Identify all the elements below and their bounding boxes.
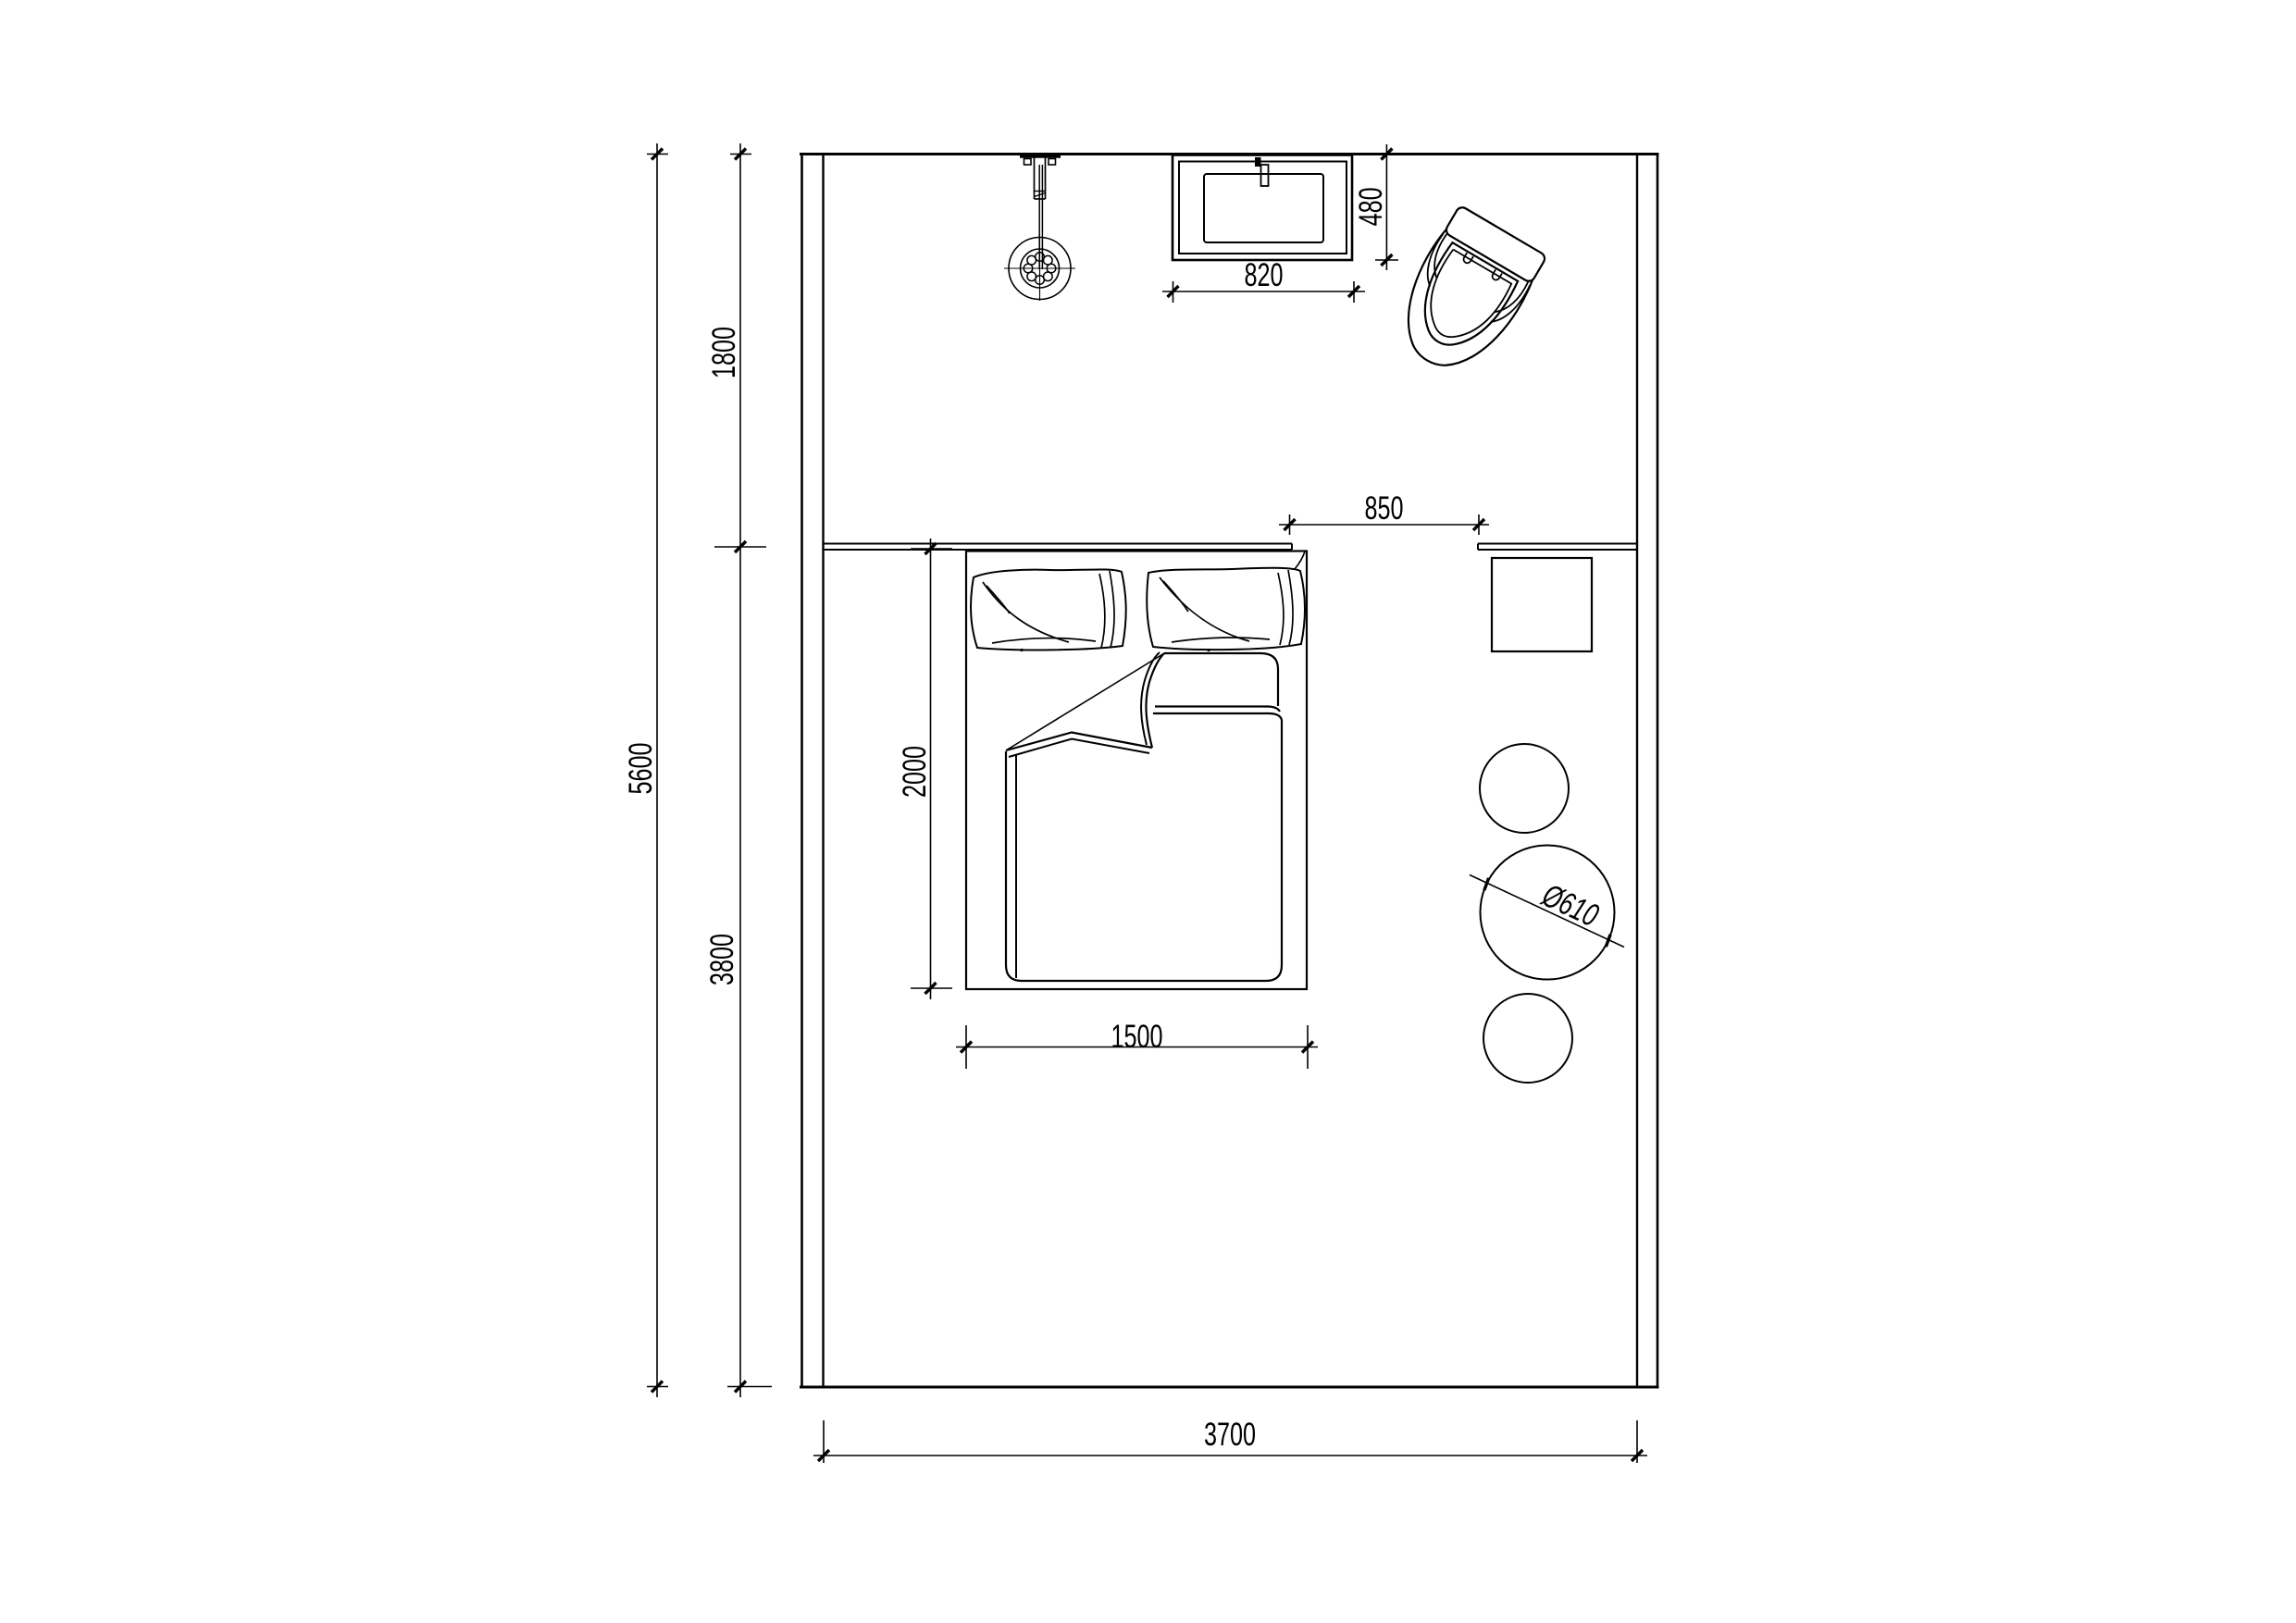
svg-text:2000: 2000 xyxy=(897,746,933,798)
svg-text:480: 480 xyxy=(1353,187,1389,226)
svg-text:820: 820 xyxy=(1244,257,1283,293)
svg-text:1500: 1500 xyxy=(1111,1019,1162,1055)
svg-text:5600: 5600 xyxy=(623,742,659,794)
svg-text:1800: 1800 xyxy=(706,327,742,378)
svg-text:850: 850 xyxy=(1364,490,1403,527)
svg-text:3700: 3700 xyxy=(1204,1417,1256,1453)
svg-text:3800: 3800 xyxy=(704,934,740,985)
